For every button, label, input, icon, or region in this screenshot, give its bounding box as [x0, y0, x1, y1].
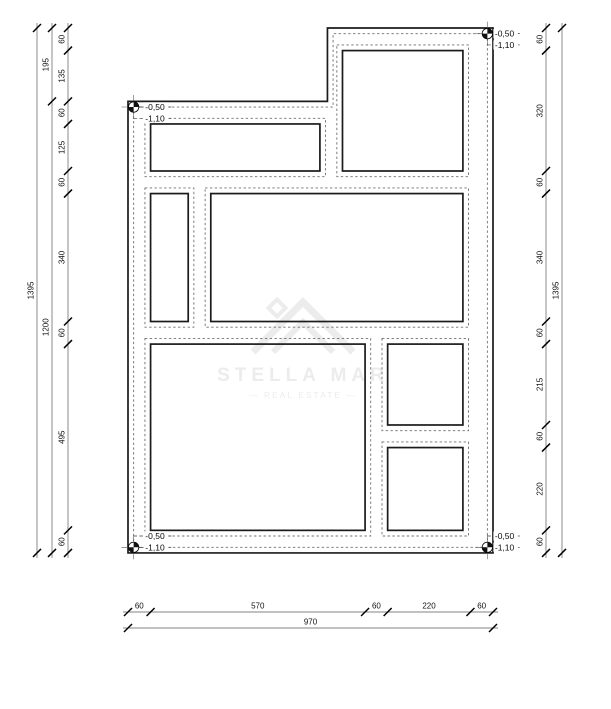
svg-text:320: 320: [536, 104, 545, 118]
svg-text:135: 135: [58, 69, 67, 83]
svg-text:-1,10: -1,10: [495, 542, 515, 552]
svg-text:495: 495: [58, 430, 67, 444]
svg-text:60: 60: [58, 108, 67, 117]
svg-text:-1,10: -1,10: [495, 40, 515, 50]
svg-text:60: 60: [477, 602, 486, 611]
svg-text:-0,50: -0,50: [495, 531, 515, 541]
svg-text:60: 60: [536, 431, 545, 440]
svg-text:215: 215: [536, 377, 545, 391]
svg-text:1395: 1395: [552, 281, 561, 299]
svg-text:220: 220: [536, 482, 545, 496]
svg-text:60: 60: [536, 537, 545, 546]
svg-text:-0,50: -0,50: [145, 102, 165, 112]
svg-text:60: 60: [135, 602, 144, 611]
svg-text:570: 570: [251, 602, 265, 611]
svg-text:1395: 1395: [27, 281, 36, 299]
svg-text:60: 60: [372, 602, 381, 611]
svg-text:340: 340: [58, 250, 67, 264]
svg-text:-0,50: -0,50: [495, 29, 515, 39]
svg-text:60: 60: [58, 328, 67, 337]
svg-text:970: 970: [304, 618, 318, 627]
svg-text:-1,10: -1,10: [145, 542, 165, 552]
svg-text:220: 220: [422, 602, 436, 611]
svg-text:60: 60: [536, 34, 545, 43]
drawing-canvas: STELLA MAR — REAL ESTATE — -0,50-1,10-0,…: [0, 0, 611, 709]
svg-text:125: 125: [58, 140, 67, 154]
svg-text:60: 60: [536, 328, 545, 337]
foundation-plan-drawing: -0,50-1,10-0,50-1,10-0,50-1,10-0,50-1,10…: [0, 0, 611, 709]
svg-text:60: 60: [58, 34, 67, 43]
svg-text:60: 60: [58, 177, 67, 186]
svg-text:340: 340: [536, 250, 545, 264]
svg-text:60: 60: [536, 177, 545, 186]
svg-text:195: 195: [42, 57, 51, 71]
svg-text:1200: 1200: [42, 318, 51, 336]
svg-text:60: 60: [58, 537, 67, 546]
svg-text:-1,10: -1,10: [145, 113, 165, 123]
svg-text:-0,50: -0,50: [145, 531, 165, 541]
